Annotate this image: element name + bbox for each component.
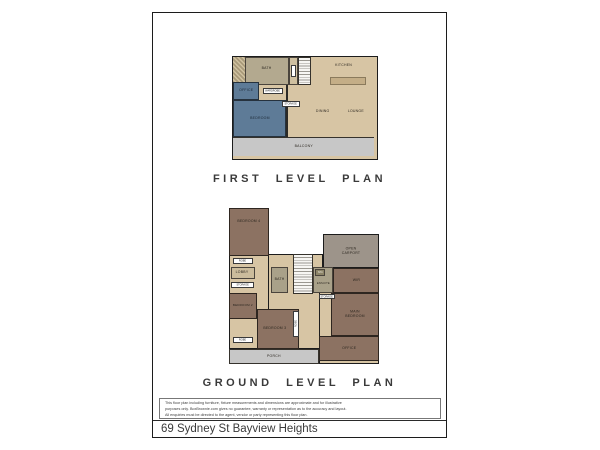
lounge-label: LOUNGE (348, 110, 364, 114)
storage-label: STORAGE (285, 103, 297, 106)
porch-area (229, 349, 319, 364)
storage-tag: STORAGE (282, 101, 300, 107)
office-area (233, 82, 259, 100)
ground-level-plan: ROBE ROBE STORAGE STORAGE ROBE BEDROOM 4… (229, 208, 379, 364)
stairs (298, 57, 311, 85)
robe2-label: ROBE (239, 339, 246, 342)
open-carport-area (323, 234, 379, 268)
bath-area-ground (271, 267, 288, 293)
disclaimer-line-3: All enquiries must be directed to the ag… (165, 413, 438, 419)
storage-mid-tag: STORAGE (319, 294, 335, 299)
storage-mid-label: STORAGE (321, 295, 333, 298)
lounge-label-wrap: LOUNGE (337, 105, 375, 119)
wardrobe-label: WARDROBE (266, 90, 281, 93)
robe4-label: ROBE (239, 260, 246, 263)
robe4-tag: ROBE (233, 258, 253, 264)
lobby-area (231, 267, 255, 279)
balcony-area (233, 137, 374, 156)
office-area-ground (319, 336, 379, 361)
floorplan-page: BATH KITCHEN OFFICE BEDROOM DINING LOUNG… (152, 12, 447, 438)
main-bedroom-area (331, 293, 379, 336)
dining-label-wrap: DINING (303, 105, 343, 119)
interior-wall (286, 85, 288, 137)
bedroom4-area (229, 208, 269, 256)
stairs-ground (293, 254, 313, 294)
disclaimer-box: This floor plan including furniture, fix… (159, 398, 441, 419)
robe3-label: ROBE (295, 320, 298, 327)
storage-lobby-tag: STORAGE (231, 282, 254, 288)
property-address: 69 Sydney St Bayview Heights (161, 423, 318, 435)
linen-tag (291, 65, 296, 77)
bedroom2-area (229, 293, 257, 319)
address-bar: 69 Sydney St Bayview Heights (153, 420, 446, 438)
wardrobe-tag: WARDROBE (263, 88, 283, 94)
first-level-plan-title: FIRST LEVEL PLAN (153, 173, 446, 185)
spa-box (315, 269, 325, 276)
disclaimer-line-2: purposes only. BoxBrownie.com gives no g… (165, 407, 438, 413)
kitchen-label: KITCHEN (336, 64, 353, 68)
robe3-strip: ROBE (293, 311, 299, 337)
disclaimer-line-1: This floor plan including furniture, fix… (165, 401, 438, 407)
bath-area (245, 57, 289, 85)
dining-label: DINING (316, 110, 330, 114)
wir-area (333, 268, 379, 293)
robe2-tag: ROBE (233, 337, 253, 343)
void-hatch-area (233, 57, 245, 85)
kitchen-island (330, 77, 366, 85)
kitchen-label-wrap: KITCHEN (313, 59, 375, 73)
storage-lobby-label: STORAGE (236, 284, 248, 287)
ground-level-plan-title: GROUND LEVEL PLAN (153, 377, 446, 389)
first-level-plan: BATH KITCHEN OFFICE BEDROOM DINING LOUNG… (232, 56, 378, 160)
bedroom-area (233, 100, 286, 137)
